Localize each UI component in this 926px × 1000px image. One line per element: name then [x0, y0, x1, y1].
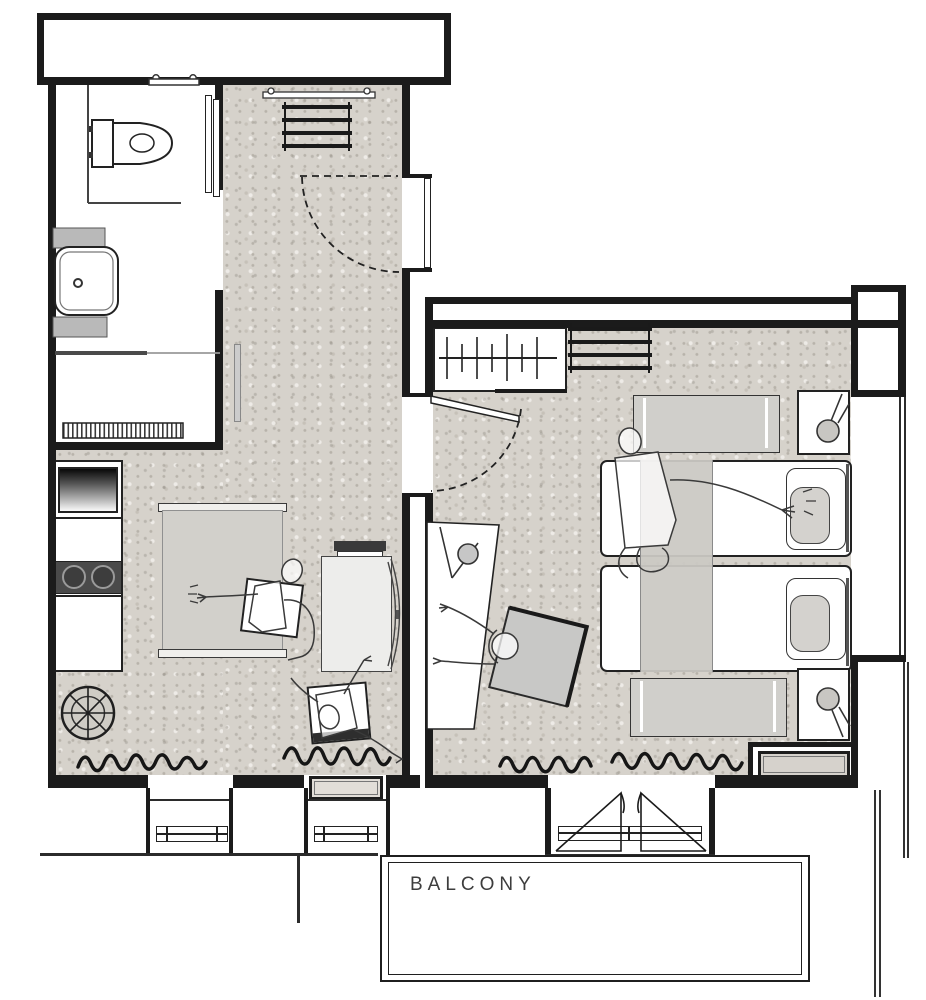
wardrobe-rail-icon [439, 334, 567, 391]
floor-plan: BALCONY [0, 0, 926, 1000]
bedroom-door [431, 396, 521, 491]
round-table-icon [62, 687, 114, 739]
curtain-squiggles [78, 748, 742, 772]
table-lamp-icon [817, 394, 849, 442]
table-lamp-icon [817, 688, 850, 737]
toilet-icon [88, 120, 172, 167]
coat-rack-icon [263, 88, 375, 151]
table-drop-leaf [388, 559, 400, 669]
balcony-door-icon [556, 793, 706, 851]
entry-door-swing [300, 176, 399, 272]
bathroom-sink-icon [53, 228, 118, 337]
shower-mat-icon [63, 423, 183, 438]
wall-shelf-icon [149, 75, 199, 85]
desk [427, 522, 499, 729]
person-sketch [615, 426, 816, 578]
person-sketch [188, 556, 314, 660]
cooktop-burners [63, 566, 114, 588]
coat-rack-icon [568, 323, 652, 373]
plan-linework [0, 0, 926, 1000]
